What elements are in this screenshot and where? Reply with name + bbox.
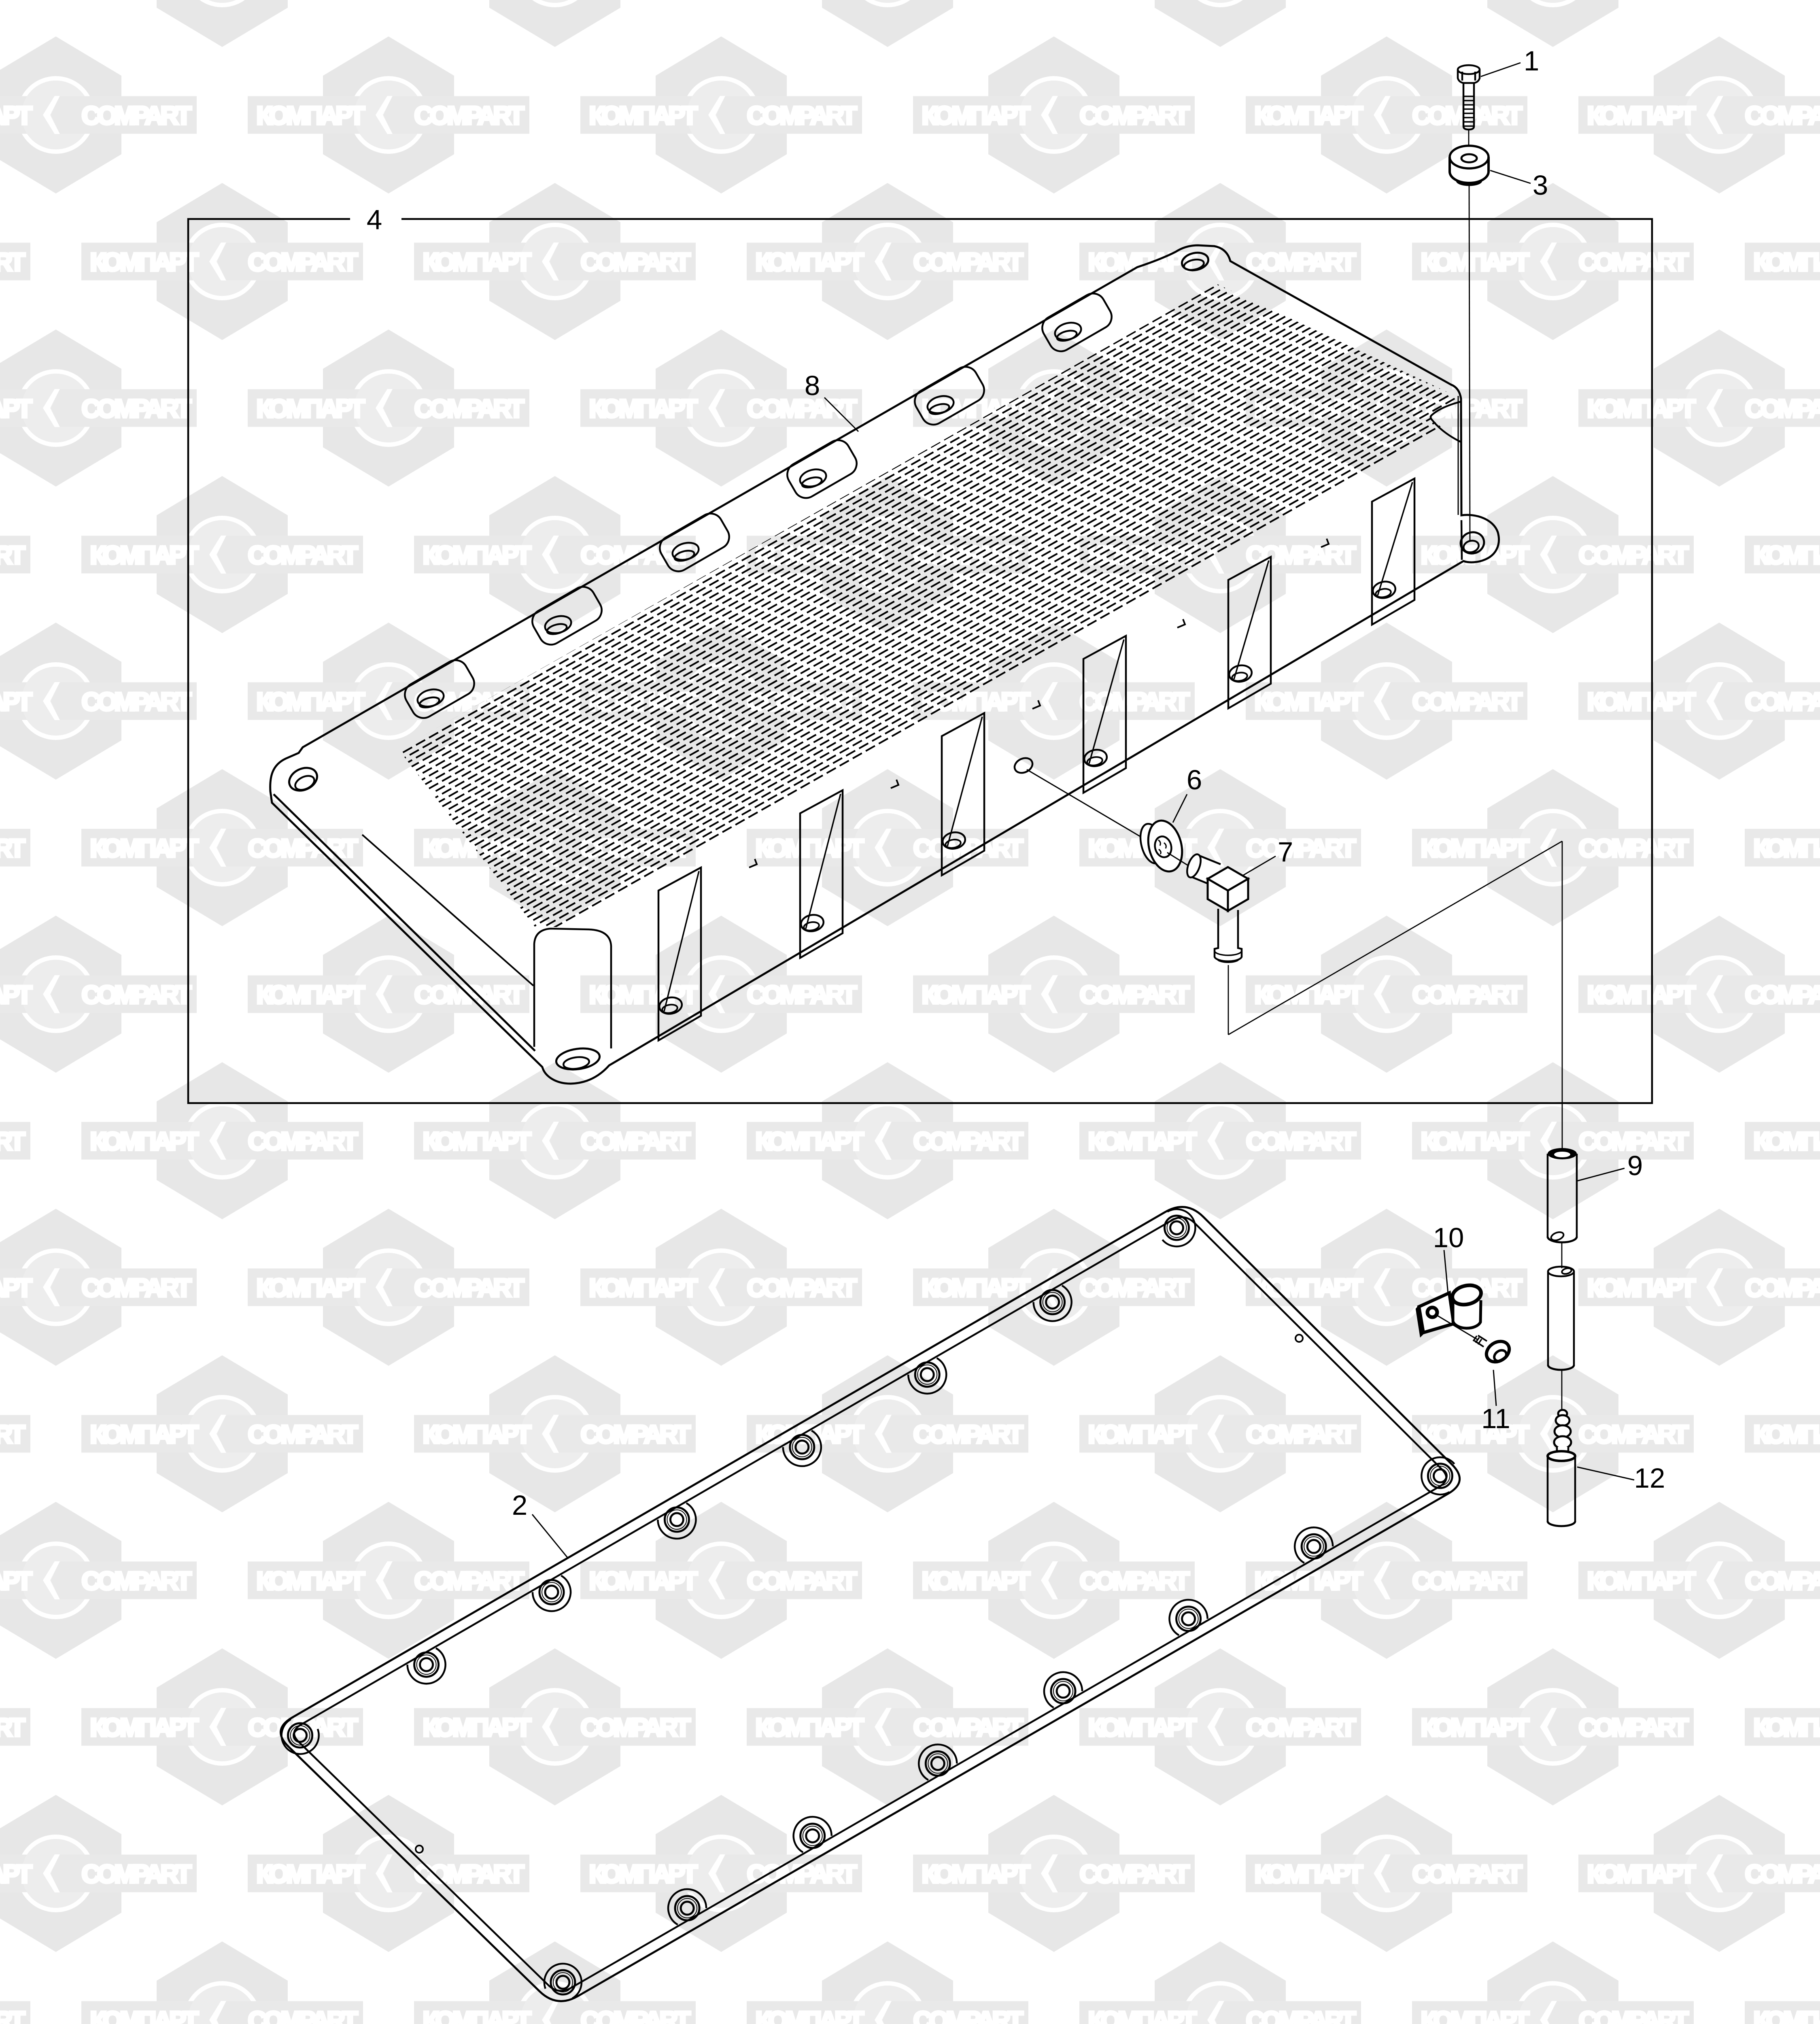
svg-text:7: 7 (1278, 836, 1293, 867)
svg-text:3: 3 (1533, 170, 1548, 201)
svg-text:1: 1 (1524, 45, 1539, 77)
svg-text:2: 2 (512, 1490, 527, 1521)
svg-text:11: 11 (1481, 1403, 1510, 1434)
svg-text:4: 4 (367, 204, 382, 235)
svg-text:8: 8 (805, 370, 820, 401)
svg-text:12: 12 (1634, 1463, 1665, 1494)
svg-text:10: 10 (1433, 1222, 1464, 1253)
svg-text:6: 6 (1187, 764, 1202, 795)
svg-text:9: 9 (1627, 1150, 1643, 1181)
